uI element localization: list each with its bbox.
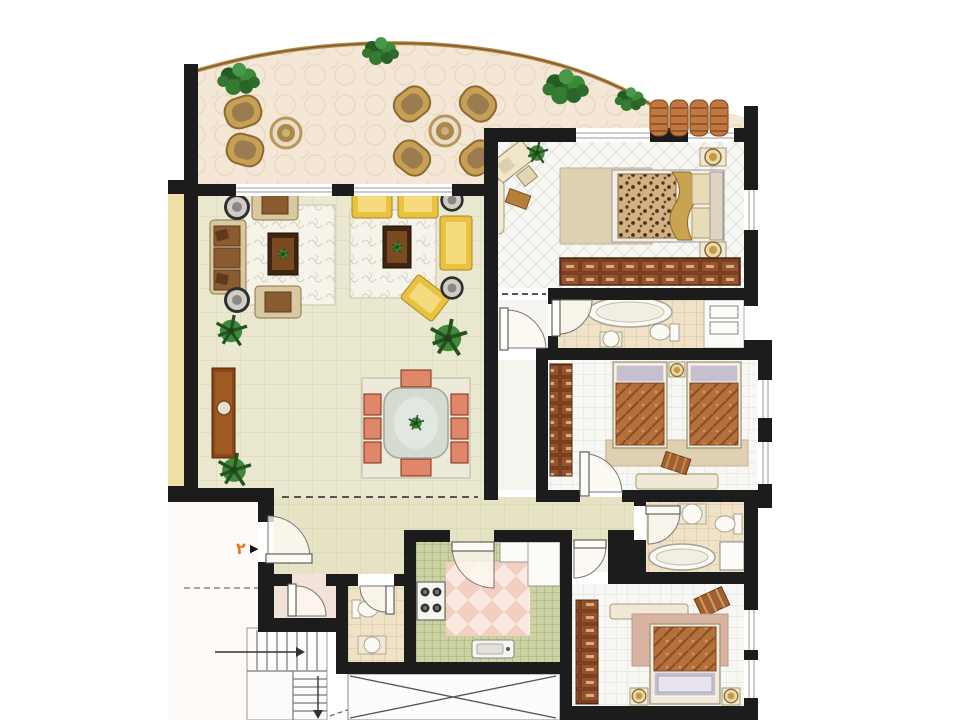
- kitchen-sink: [472, 640, 514, 658]
- nightstand: [630, 688, 648, 705]
- stove: [417, 582, 445, 620]
- inner-hallway: [498, 360, 536, 490]
- dining-chair: [451, 418, 468, 439]
- side-table: [224, 194, 250, 220]
- window: [744, 610, 758, 650]
- sink: [358, 636, 386, 654]
- floor-plan-page: ٢ ▶: [0, 0, 960, 720]
- sink: [678, 504, 706, 524]
- kitchen-cabinet: [528, 542, 560, 586]
- dining-chair: [401, 459, 431, 476]
- master-dresser: [560, 258, 740, 285]
- bed: [650, 624, 720, 704]
- tv-console: [212, 368, 235, 458]
- window: [744, 190, 758, 230]
- window: [758, 442, 772, 484]
- awning-roll: [690, 100, 708, 136]
- floor-plan-drawing: ٢ ▶: [0, 0, 960, 720]
- side-table: [440, 276, 463, 299]
- coffee-table-left: [268, 233, 298, 275]
- bench: [636, 474, 718, 489]
- unit-number-label: ٢: [236, 539, 246, 558]
- nightstand: [722, 688, 740, 705]
- wardrobe: [576, 600, 598, 704]
- nightstand: [669, 362, 685, 377]
- dining-set: [362, 370, 470, 478]
- nightstand: [700, 148, 726, 166]
- dining-chair: [451, 394, 468, 415]
- bath-cabinet: [720, 542, 744, 570]
- awning-roll: [710, 100, 728, 136]
- outside-common-area: [168, 500, 258, 720]
- armchair-brown-bottom: [255, 286, 301, 318]
- window: [354, 184, 452, 196]
- toilet: [650, 324, 679, 341]
- window: [744, 660, 758, 698]
- awning-roll: [650, 100, 668, 136]
- light-shaft: [348, 674, 560, 720]
- dining-chair: [364, 394, 381, 415]
- toilet: [715, 514, 742, 534]
- dining-chair: [401, 370, 431, 387]
- coffee-table-right: [383, 226, 411, 268]
- bedroom3-door: [574, 540, 606, 578]
- dining-chair: [364, 442, 381, 463]
- twin-bed: [613, 362, 667, 448]
- dining-chair: [364, 418, 381, 439]
- window: [576, 128, 650, 142]
- sofa-brown: [210, 220, 246, 294]
- sink: [600, 331, 622, 347]
- master-bed: [612, 170, 724, 242]
- side-balcony-strip: [168, 194, 184, 486]
- dining-chair: [451, 442, 468, 463]
- window: [236, 184, 332, 196]
- sofa-yellow-right: [440, 216, 472, 270]
- entrance-pointer-icon: ▶: [250, 542, 259, 555]
- awning-roll: [670, 100, 688, 136]
- twin-bed: [687, 362, 741, 448]
- window: [758, 380, 772, 418]
- nightstand: [700, 242, 726, 258]
- side-table: [224, 287, 250, 313]
- wardrobe: [550, 364, 572, 476]
